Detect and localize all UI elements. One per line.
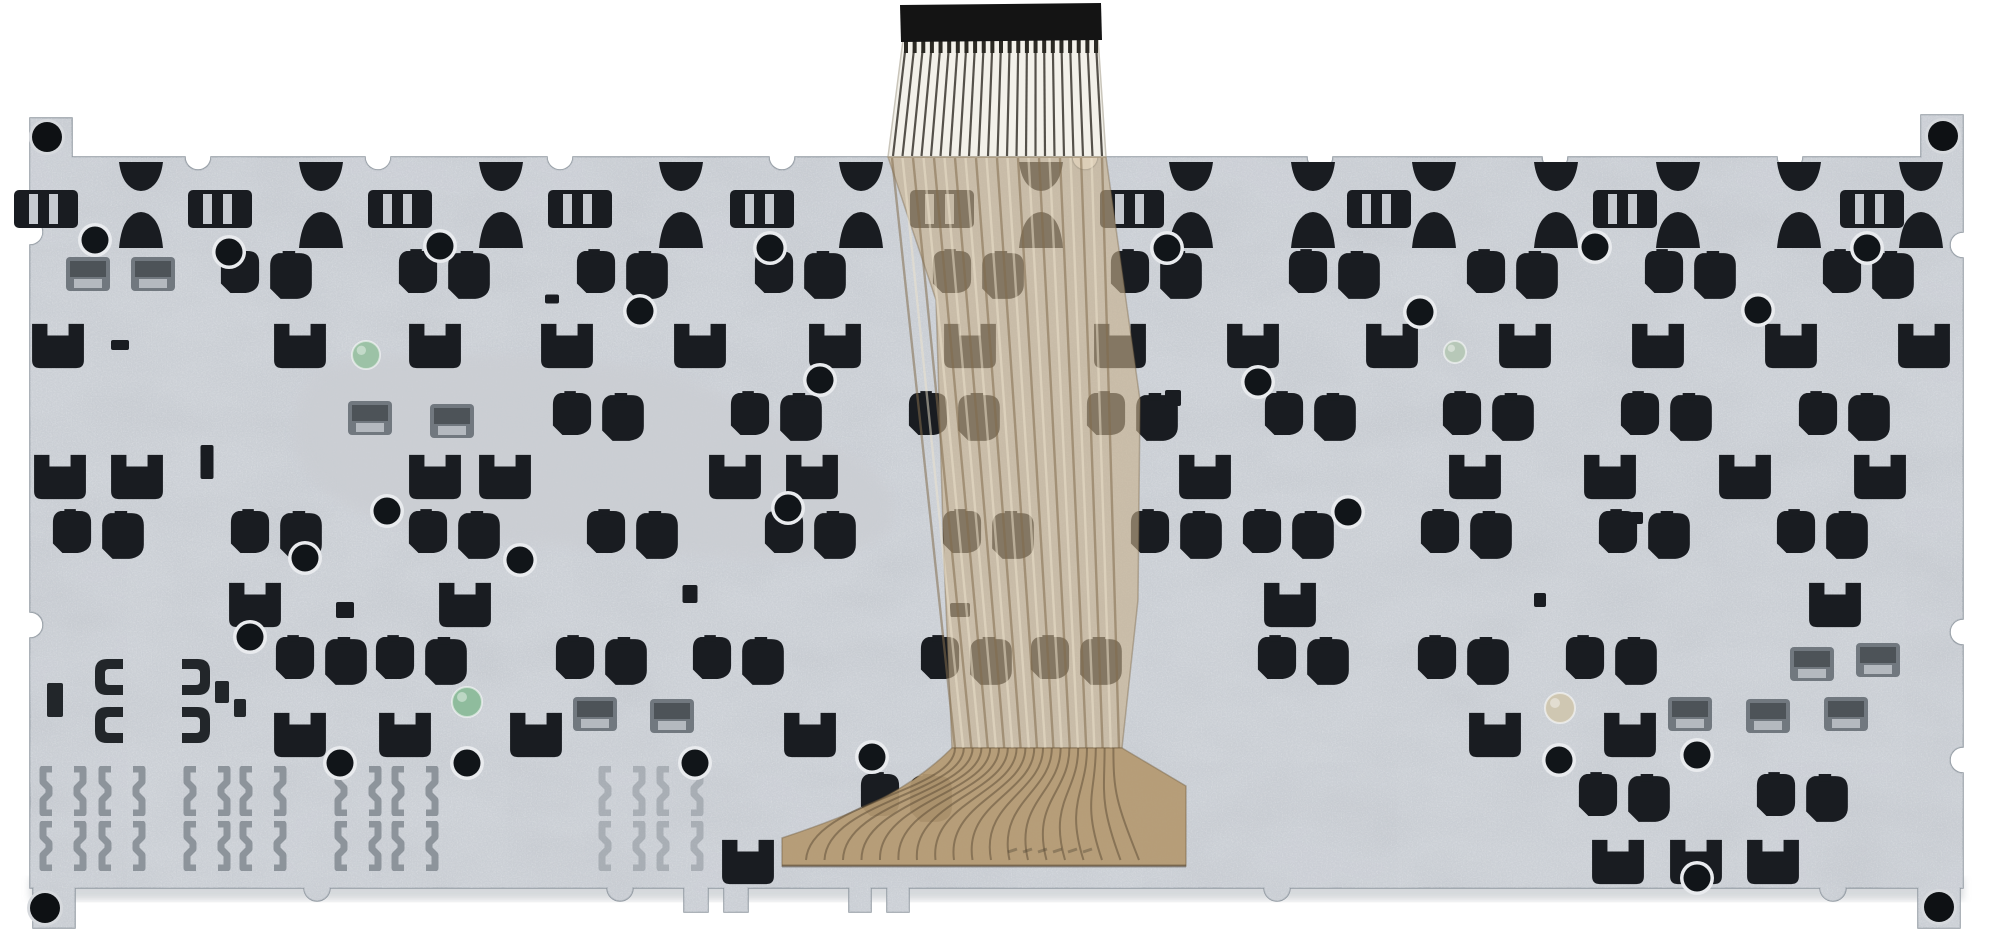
clip-iii-slot (1840, 190, 1904, 228)
clip-gray-latch (1856, 643, 1900, 677)
clip-blob (742, 637, 784, 685)
keyboard-backplate-photo (0, 0, 2000, 948)
cable-contact (1068, 40, 1072, 53)
clip-blob (376, 635, 414, 679)
clip-blob (270, 251, 312, 299)
switch-hole (288, 541, 322, 575)
clip-blob (1670, 393, 1712, 441)
cable-contact (1042, 40, 1046, 53)
cable-contact (990, 40, 994, 53)
clip-blob (804, 251, 846, 299)
clip-blob (1566, 635, 1604, 679)
switch-hole (1331, 495, 1365, 529)
clip-blob (1826, 511, 1868, 559)
cable-contact (1034, 40, 1038, 53)
switch-hole (1850, 231, 1884, 265)
clip-blob (814, 511, 856, 559)
adhesive-dot (1444, 341, 1466, 363)
clip-small-bit (111, 340, 129, 350)
cable-contact (956, 40, 960, 53)
adhesive-dot (452, 687, 482, 717)
clip-blob (1694, 251, 1736, 299)
cable-contact (1016, 40, 1020, 53)
cable-contact (964, 40, 968, 53)
clip-blob (1443, 391, 1481, 435)
clip-blob (276, 635, 314, 679)
clip-blob (1467, 637, 1509, 685)
cable-contact (982, 40, 986, 53)
clip-blob (731, 391, 769, 435)
clip-blob (1338, 251, 1380, 299)
clip-blob (1467, 249, 1505, 293)
clip-blob (409, 509, 447, 553)
clip-iii-slot (368, 190, 432, 228)
cable-contact (1008, 40, 1012, 53)
cable-contact (973, 40, 977, 53)
cable-contact (999, 40, 1003, 53)
clip-gray-latch (430, 404, 474, 438)
switch-hole (1578, 230, 1612, 264)
switch-hole (1741, 293, 1775, 327)
clip-blob (1848, 393, 1890, 441)
clip-gray-latch (650, 699, 694, 733)
clip-blob (587, 509, 625, 553)
clip-blob (1307, 637, 1349, 685)
clip-blob (1289, 249, 1327, 293)
cable-contact (930, 40, 934, 53)
clip-small-bit (336, 602, 354, 618)
clip-small-bit (683, 585, 698, 603)
clip-gray-latch (1824, 697, 1868, 731)
clip-iii-slot (730, 190, 794, 228)
clip-iii-slot (1593, 190, 1657, 228)
clip-blob (1314, 393, 1356, 441)
switch-hole (370, 494, 404, 528)
clip-small-bit (1534, 593, 1546, 607)
clip-gray-latch (573, 697, 617, 731)
clip-blob (102, 511, 144, 559)
clip-blob (1421, 509, 1459, 553)
clip-blob (1777, 509, 1815, 553)
clip-blob (1243, 509, 1281, 553)
clip-gray-latch (131, 257, 175, 291)
clip-blob (458, 511, 500, 559)
cable-stiffener-bar (900, 3, 1102, 42)
clip-blob (1806, 774, 1848, 822)
switch-hole (450, 746, 484, 780)
switch-hole (855, 740, 889, 774)
cable-conductor-line (1044, 43, 1045, 156)
clip-blob (1621, 391, 1659, 435)
clip-iii-slot (188, 190, 252, 228)
clip-blob (780, 393, 822, 441)
switch-hole (753, 231, 787, 265)
clip-blob (425, 637, 467, 685)
clip-blob (1258, 635, 1296, 679)
clip-blob (53, 509, 91, 553)
cable-contact (1085, 40, 1089, 53)
clip-blob (577, 249, 615, 293)
clip-blob (1579, 772, 1617, 816)
clip-blob (1645, 249, 1683, 293)
clip-small-bit (234, 699, 246, 717)
clip-blob (602, 393, 644, 441)
clip-small-bit (201, 445, 214, 479)
clip-blob (1648, 511, 1690, 559)
clip-blob (556, 635, 594, 679)
clip-small-bit (1165, 390, 1181, 406)
clip-blob (553, 391, 591, 435)
clip-small-bit (47, 683, 63, 717)
clip-small-bit (215, 681, 229, 703)
cable-contact (1094, 40, 1098, 53)
clip-blob (448, 251, 490, 299)
clip-gray-latch (1668, 697, 1712, 731)
adhesive-dot (1545, 693, 1575, 723)
clip-gray-latch (1790, 647, 1834, 681)
clip-blob (1265, 391, 1303, 435)
screw-hole (29, 119, 65, 155)
cable-conductor-line (1026, 43, 1027, 156)
screw-hole (27, 890, 63, 926)
adhesive-dot (352, 341, 380, 369)
switch-hole (423, 229, 457, 263)
cable-contact (1025, 40, 1029, 53)
switch-hole (1150, 231, 1184, 265)
cable-contact (921, 40, 925, 53)
switch-hole (803, 363, 837, 397)
switch-hole (623, 294, 657, 328)
clip-blob (1292, 511, 1334, 559)
cable-contact (939, 40, 943, 53)
switch-hole (233, 620, 267, 654)
clip-blob (325, 637, 367, 685)
clip-small-bit (1631, 512, 1643, 524)
clip-blob (1799, 391, 1837, 435)
switch-hole (1542, 743, 1576, 777)
switch-hole (503, 543, 537, 577)
clip-blob (1757, 772, 1795, 816)
clip-small-bit (545, 295, 559, 304)
scene-root (0, 0, 2000, 948)
cable-contact (913, 40, 917, 53)
screw-hole (1921, 889, 1957, 925)
clip-gray-latch (1746, 699, 1790, 733)
switch-hole (1403, 295, 1437, 329)
clip-blob (1470, 511, 1512, 559)
switch-hole (1680, 861, 1714, 895)
switch-hole (771, 491, 805, 525)
clip-blob (626, 251, 668, 299)
clip-blob (1180, 511, 1222, 559)
photo-canvas (0, 0, 2000, 948)
clip-blob (1418, 635, 1456, 679)
cable-contact (1077, 40, 1081, 53)
switch-hole (1680, 738, 1714, 772)
screw-hole (1925, 118, 1961, 154)
clip-iii-slot (1347, 190, 1411, 228)
switch-hole (678, 746, 712, 780)
clip-blob (1628, 774, 1670, 822)
clip-blob (1492, 393, 1534, 441)
clip-iii-slot (548, 190, 612, 228)
clip-gray-latch (66, 257, 110, 291)
clip-blob (636, 511, 678, 559)
clip-gray-latch (348, 401, 392, 435)
switch-hole (78, 223, 112, 257)
switch-hole (323, 746, 357, 780)
cable-contact (1051, 40, 1055, 53)
clip-iii-slot (14, 190, 78, 228)
clip-blob (231, 509, 269, 553)
clip-blob (1516, 251, 1558, 299)
switch-hole (1241, 365, 1275, 399)
clip-blob (605, 637, 647, 685)
cable-contact (947, 40, 951, 53)
cable-contact (1059, 40, 1063, 53)
clip-blob (1615, 637, 1657, 685)
switch-hole (212, 235, 246, 269)
clip-blob (693, 635, 731, 679)
